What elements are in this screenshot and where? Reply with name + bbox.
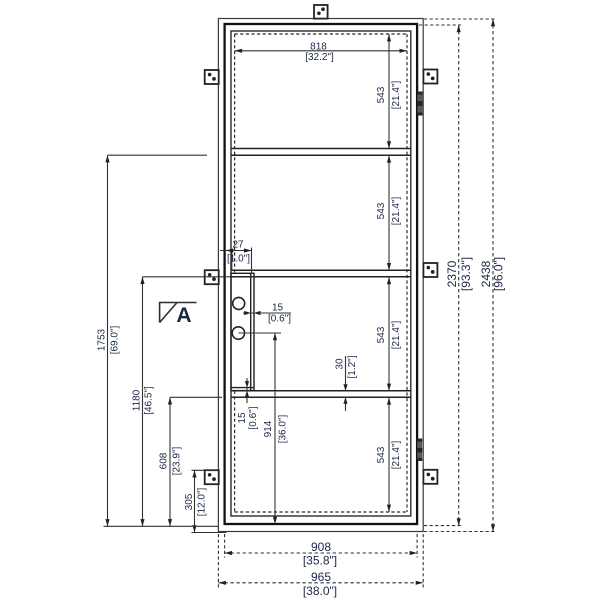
svg-text:[38.0"]: [38.0"] [303,584,337,598]
svg-text:[23.9"]: [23.9"] [172,446,183,475]
svg-text:[0.6"]: [0.6"] [248,406,259,429]
svg-text:[21.4"]: [21.4"] [391,440,402,469]
svg-text:[21.4"]: [21.4"] [391,196,402,225]
svg-text:15: 15 [272,303,284,314]
svg-text:[96.0"]: [96.0"] [492,257,506,291]
svg-text:27: 27 [232,240,244,251]
svg-text:[32.2"]: [32.2"] [305,52,334,63]
svg-text:[93.3"]: [93.3"] [459,257,473,291]
svg-text:1753: 1753 [96,328,107,351]
svg-text:965: 965 [311,570,331,584]
svg-text:543: 543 [376,86,387,103]
svg-text:543: 543 [376,446,387,463]
svg-text:[21.4"]: [21.4"] [391,320,402,349]
svg-text:[36.0"]: [36.0"] [277,414,288,443]
svg-text:[35.8"]: [35.8"] [303,554,337,568]
svg-text:[12.0"]: [12.0"] [197,487,208,516]
svg-text:[21.4"]: [21.4"] [391,80,402,109]
svg-text:[46.5"]: [46.5"] [144,386,155,415]
svg-text:818: 818 [310,41,327,52]
svg-text:543: 543 [376,326,387,343]
svg-text:305: 305 [184,493,195,510]
svg-text:[1.2"]: [1.2"] [347,355,358,378]
svg-text:15: 15 [237,412,248,424]
svg-text:[0.6"]: [0.6"] [268,314,291,325]
svg-text:A: A [176,304,191,327]
svg-text:543: 543 [376,202,387,219]
svg-text:[1.0"]: [1.0"] [227,254,250,265]
svg-text:1180: 1180 [131,389,142,411]
svg-text:908: 908 [311,540,331,554]
svg-text:608: 608 [158,452,169,469]
svg-text:30: 30 [334,358,345,370]
svg-text:[69.0"]: [69.0"] [110,325,121,354]
svg-text:914: 914 [263,420,274,437]
svg-text:2370: 2370 [445,260,459,287]
